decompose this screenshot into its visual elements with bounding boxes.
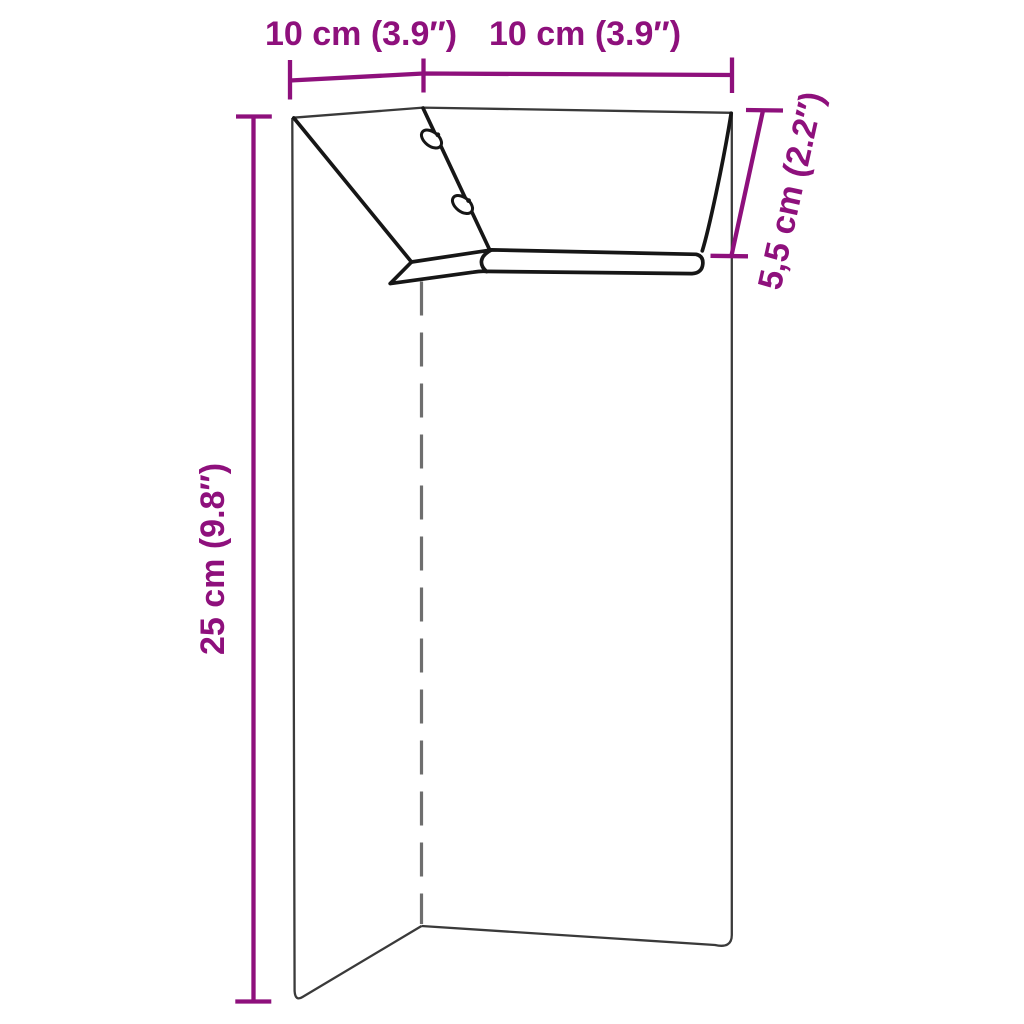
dim-depth-tick-top <box>746 110 783 111</box>
label-panel-height: 25 cm (9.8″) <box>194 463 232 655</box>
flange-top-fold-edge <box>293 108 731 118</box>
dimension-labels: 10 cm (3.9″) 10 cm (3.9″) 5,5 cm (2.2″) … <box>194 15 832 655</box>
label-top-left-width: 10 cm (3.9″) <box>265 15 457 53</box>
label-top-right-width: 10 cm (3.9″) <box>489 15 681 53</box>
diagram-svg: 10 cm (3.9″) 10 cm (3.9″) 5,5 cm (2.2″) … <box>0 0 1024 1024</box>
flange-lip-corner-curve <box>481 250 491 272</box>
dim-top-extent-line <box>290 74 732 81</box>
product-dimension-diagram: 10 cm (3.9″) 10 cm (3.9″) 5,5 cm (2.2″) … <box>0 0 1024 1024</box>
slot-edge-mark-lower <box>466 198 471 203</box>
flange-corner-fold <box>423 108 490 250</box>
slot-hole-lower <box>449 192 476 217</box>
dim-depth-extent-line <box>732 111 764 256</box>
flange-lip-left <box>390 262 486 284</box>
panel-outlines <box>292 108 732 999</box>
flange-slots <box>418 126 476 217</box>
flange-left-fold <box>294 118 412 262</box>
slot-hole-upper <box>418 126 445 151</box>
flange-bold-lines <box>294 108 731 284</box>
dimension-lines <box>235 58 783 1002</box>
panel-right-and-bottom-edge <box>422 113 732 946</box>
flange-lip-right <box>412 250 703 274</box>
slot-edge-mark-upper <box>435 132 440 137</box>
flange-right-edge <box>702 113 731 251</box>
